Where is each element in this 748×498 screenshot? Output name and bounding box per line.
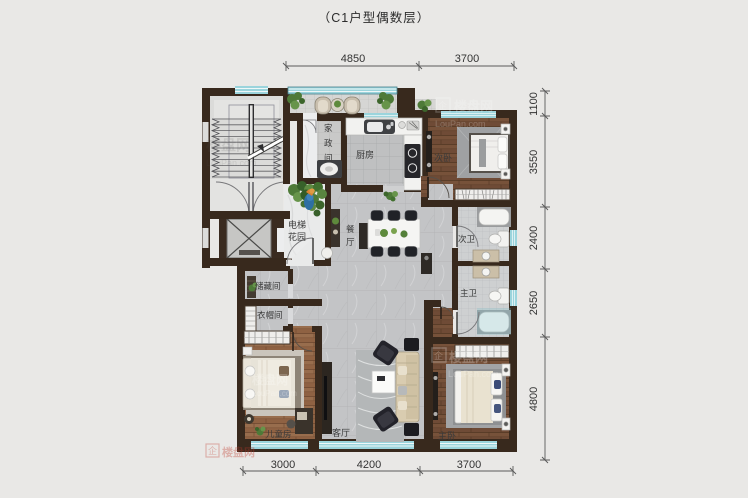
svg-text:3550: 3550: [528, 150, 540, 174]
svg-text:次卫: 次卫: [458, 234, 476, 244]
svg-text:楼盘网: 楼盘网: [252, 372, 288, 387]
svg-text:企: 企: [208, 445, 217, 456]
svg-text:2650: 2650: [528, 291, 540, 315]
svg-text:厨房: 厨房: [356, 149, 374, 160]
svg-text:楼盘网: 楼盘网: [454, 99, 493, 114]
svg-text:LouPan.com: LouPan.com: [435, 119, 486, 129]
svg-text:2400: 2400: [528, 226, 540, 250]
svg-text:4800: 4800: [528, 387, 540, 411]
svg-text:企: 企: [434, 350, 443, 361]
svg-text:客厅: 客厅: [332, 427, 350, 438]
svg-text:儿童房: 儿童房: [266, 429, 292, 439]
svg-text:3000: 3000: [271, 459, 295, 471]
svg-text:楼盘网: 楼盘网: [206, 136, 251, 154]
svg-text:衣帽间: 衣帽间: [257, 310, 283, 320]
svg-text:电梯: 电梯: [288, 219, 306, 230]
svg-text:家: 家: [324, 123, 333, 133]
svg-text:花园: 花园: [288, 231, 306, 242]
svg-text:主卧: 主卧: [438, 430, 456, 441]
svg-text:3700: 3700: [455, 53, 479, 65]
svg-text:厅: 厅: [346, 237, 355, 247]
svg-text:4850: 4850: [341, 53, 365, 65]
svg-text:LouPan.com: LouPan.com: [206, 158, 257, 168]
svg-text:4200: 4200: [357, 459, 381, 471]
svg-text:间: 间: [324, 153, 333, 163]
svg-text:LouPan.com: LouPan.com: [252, 389, 297, 398]
svg-text:楼盘网: 楼盘网: [449, 350, 488, 365]
svg-text:（C1户型偶数层）: （C1户型偶数层）: [318, 10, 430, 25]
svg-text:3700: 3700: [457, 459, 481, 471]
svg-text:储藏间: 储藏间: [255, 281, 281, 291]
svg-text:1100: 1100: [528, 92, 540, 116]
svg-text:主卫: 主卫: [460, 288, 478, 298]
svg-text:政: 政: [324, 138, 333, 148]
svg-text:餐: 餐: [346, 224, 355, 234]
svg-text:次卧: 次卧: [434, 152, 452, 163]
svg-text:企: 企: [438, 100, 447, 111]
svg-text:楼盘网: 楼盘网: [222, 445, 255, 459]
svg-text:LouPan.com: LouPan.com: [448, 369, 499, 379]
